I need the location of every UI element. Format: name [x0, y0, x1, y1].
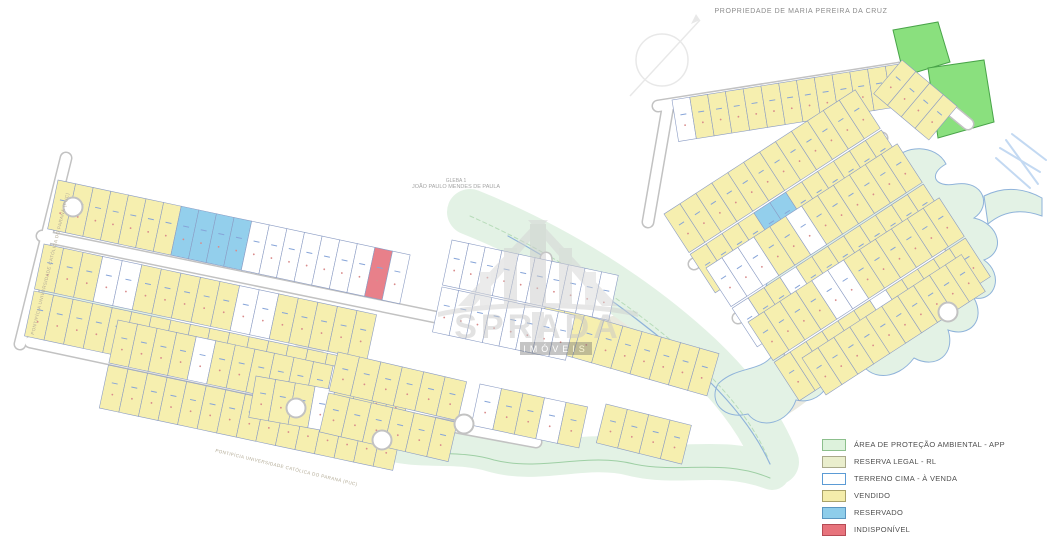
watermark-subtitle-text: IMÓVEIS [523, 344, 589, 354]
legend-item: ÁREA DE PROTEÇÃO AMBIENTAL - APP [822, 438, 1005, 451]
culdesac [287, 399, 306, 418]
layer-stream-cascade [996, 134, 1046, 188]
site-plan-viewer: SPRADA IMÓVEIS PROPRIEDADE DE MARIA PERE… [0, 0, 1050, 547]
logo-building [585, 272, 596, 306]
legend-item: INDISPONÍVEL [822, 523, 1005, 536]
logo-building [480, 272, 491, 306]
legend-item: RESERVADO [822, 506, 1005, 519]
culdesac [373, 431, 392, 450]
legend-item: VENDIDO [822, 489, 1005, 502]
property-title: PROPRIEDADE DE MARIA PEREIRA DA CRUZ [656, 8, 946, 15]
legend: ÁREA DE PROTEÇÃO AMBIENTAL - APP RESERVA… [822, 438, 1005, 540]
north-compass-icon [630, 14, 700, 96]
legend-swatch [822, 439, 846, 451]
legend-swatch [822, 490, 846, 502]
stream-outlet [984, 189, 1042, 224]
legend-swatch [822, 473, 846, 485]
culdesac [939, 303, 958, 322]
watermark-brand-text: SPRADA [454, 308, 622, 346]
legend-label: RESERVADO [854, 508, 903, 517]
legend-label: VENDIDO [854, 491, 890, 500]
legend-item: RESERVA LEGAL - RL [822, 455, 1005, 468]
legend-label: RESERVA LEGAL - RL [854, 457, 936, 466]
road [648, 106, 668, 222]
legend-item: TERRENO CIMA - À VENDA [822, 472, 1005, 485]
legend-swatch [822, 507, 846, 519]
logo-building [504, 248, 517, 306]
logo-building-center [530, 224, 546, 306]
cascade-line [1006, 140, 1038, 184]
logo-building [559, 248, 572, 306]
legend-swatch [822, 524, 846, 536]
gleba-label: GLEBA 1 JOÃO PAULO MENDES DE PAULA [356, 178, 556, 191]
legend-label: TERRENO CIMA - À VENDA [854, 474, 957, 483]
legend-label: ÁREA DE PROTEÇÃO AMBIENTAL - APP [854, 440, 1005, 449]
legend-label: INDISPONÍVEL [854, 525, 910, 534]
compass-needle [630, 20, 700, 96]
gleba-owner: JOÃO PAULO MENDES DE PAULA [356, 184, 556, 191]
culdesac [455, 415, 474, 434]
legend-swatch [822, 456, 846, 468]
